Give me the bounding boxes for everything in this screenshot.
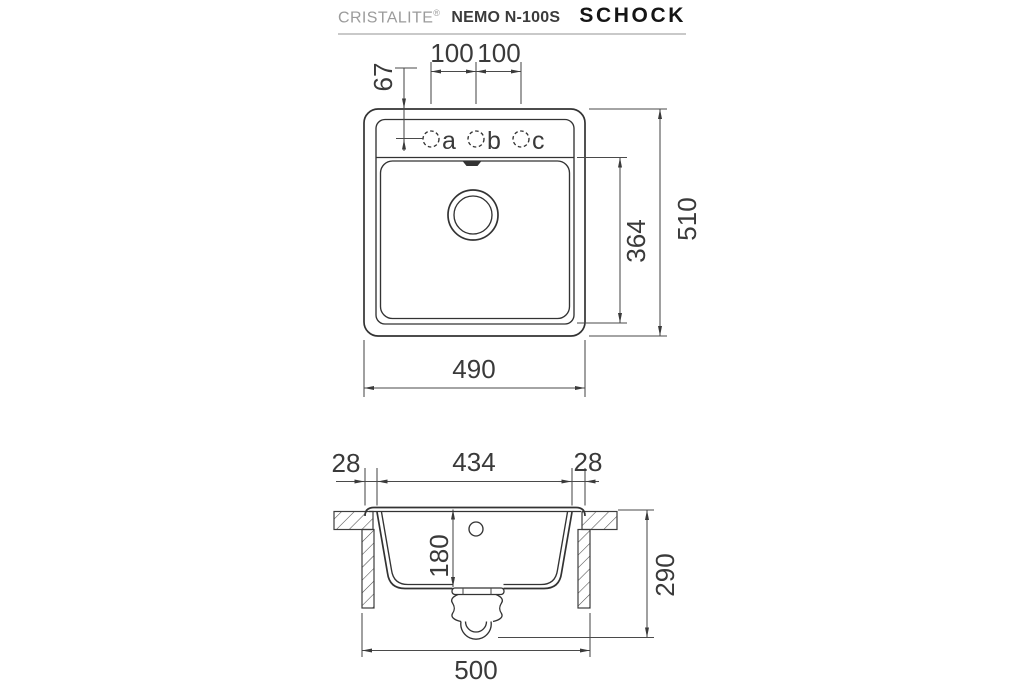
overflow-mark (463, 161, 482, 166)
dim-label-434: 434 (452, 447, 495, 477)
tap-hole-a (423, 131, 439, 147)
dim-base-width: 500 (362, 613, 590, 683)
technical-drawing: a b c 100 100 67 364 (0, 0, 1024, 683)
dim-label-510: 510 (672, 197, 702, 240)
dim-inner-length: 364 (577, 158, 651, 324)
dim-bowl-depth: 180 (424, 510, 454, 588)
drain-outer-circle (448, 190, 498, 240)
dim-hole-spacing: 100 100 (430, 38, 521, 104)
dim-label-364: 364 (621, 219, 651, 262)
drain-inner-circle (454, 196, 492, 234)
trap-body-left (452, 595, 461, 622)
overflow-hole-section (469, 522, 483, 536)
dim-label-500: 500 (454, 655, 497, 683)
dim-label-100-right: 100 (477, 38, 520, 68)
dim-label-100-left: 100 (430, 38, 473, 68)
dim-label-28-left: 28 (332, 448, 361, 478)
top-view: a b c 100 100 67 364 (364, 38, 702, 397)
dim-label-290: 290 (650, 553, 680, 596)
tap-hole-label-b: b (487, 127, 501, 155)
dim-label-490: 490 (452, 354, 495, 384)
dim-label-180: 180 (424, 534, 454, 577)
drain-trap (452, 588, 504, 639)
trap-body-right (493, 595, 502, 622)
dim-label-28-right: 28 (574, 447, 603, 477)
countertop-left (334, 512, 373, 530)
cabinet-side-left (362, 530, 374, 609)
dim-overall-width: 490 (364, 340, 585, 397)
tap-hole-label-a: a (442, 127, 456, 155)
tap-hole-c (513, 131, 529, 147)
bowl-wall-outer-right (504, 512, 573, 589)
drain-flange (452, 588, 504, 595)
trap-ubend-inner (466, 622, 487, 633)
dim-rim-and-bowl-width: 28 434 28 (332, 447, 603, 506)
countertop-right (582, 512, 617, 530)
sink-outer-outline (364, 109, 585, 336)
cabinet-side-right (578, 530, 590, 609)
section-view: 28 434 28 180 290 500 (332, 447, 680, 683)
tap-hole-b (468, 131, 484, 147)
tap-hole-label-c: c (532, 127, 545, 155)
bowl-wall-inner-right (504, 512, 568, 585)
dim-label-67: 67 (368, 63, 398, 92)
